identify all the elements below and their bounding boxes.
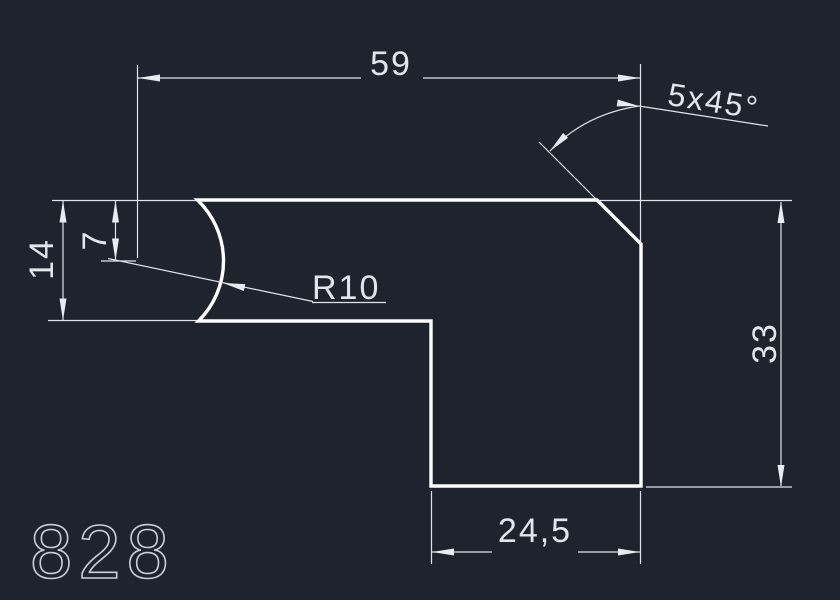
- arrowhead: [60, 201, 67, 223]
- r10-leader[interactable]: [108, 259, 313, 302]
- dimension-r10[interactable]: R10: [108, 259, 386, 308]
- arrowhead: [112, 201, 119, 223]
- chamfer-ext-line[interactable]: [539, 142, 597, 200]
- dimension-24-5[interactable]: 24,5: [432, 491, 641, 564]
- chamfer-leader-arc[interactable]: [550, 106, 639, 151]
- dim-14-text[interactable]: 14: [23, 238, 61, 280]
- dim-33-text[interactable]: 33: [746, 322, 784, 364]
- dimension-33[interactable]: 33: [598, 201, 792, 488]
- part-number-text[interactable]: 828: [30, 510, 175, 595]
- arrowhead: [222, 280, 245, 291]
- part-outline[interactable]: [198, 200, 642, 486]
- chamfer-text[interactable]: 5x45°: [665, 76, 762, 126]
- arrowhead: [548, 133, 569, 154]
- arrowhead: [778, 201, 785, 223]
- dimension-59[interactable]: 59: [138, 45, 641, 258]
- dim-59-text[interactable]: 59: [370, 45, 412, 83]
- arrowhead: [618, 549, 640, 556]
- drawing-canvas[interactable]: 59 14 7 R10 5x45° 33: [0, 0, 840, 600]
- arrowhead: [432, 549, 454, 556]
- dimension-chamfer[interactable]: 5x45°: [539, 76, 768, 200]
- arrowhead: [778, 465, 785, 487]
- arrowhead: [138, 75, 160, 82]
- dim-245-text[interactable]: 24,5: [498, 512, 572, 550]
- dimension-7[interactable]: 7: [76, 201, 136, 262]
- arrowhead: [60, 299, 67, 321]
- arrowhead: [618, 75, 640, 82]
- dim-7-text[interactable]: 7: [76, 230, 114, 251]
- r10-text[interactable]: R10: [312, 269, 380, 307]
